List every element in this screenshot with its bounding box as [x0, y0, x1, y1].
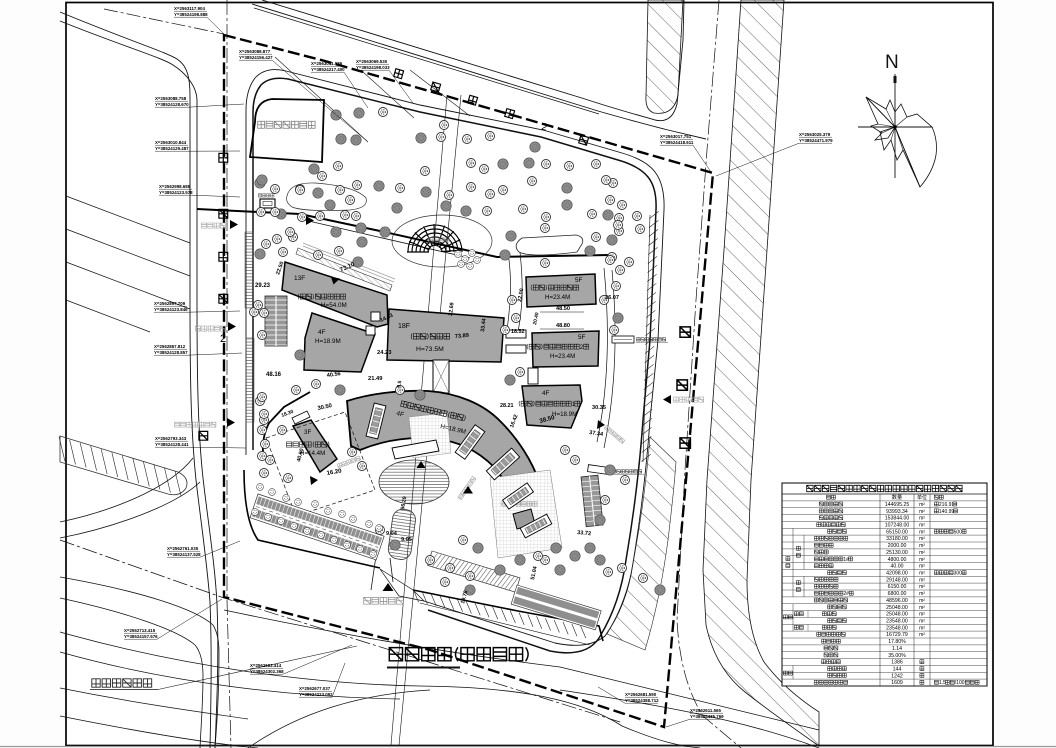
svg-text:13F: 13F	[294, 275, 305, 282]
svg-text:Y=38524302.368: Y=38524302.368	[250, 669, 284, 674]
svg-text:25048.00: 25048.00	[886, 605, 908, 611]
svg-text:m²: m²	[919, 598, 925, 604]
svg-text:Y=38524156.427: Y=38524156.427	[239, 55, 273, 60]
svg-text:1242: 1242	[891, 673, 903, 679]
svg-text:X=2563017.751: X=2563017.751	[660, 134, 692, 139]
svg-text:216.91: 216.91	[939, 502, 955, 508]
svg-text:H=23.4M: H=23.4M	[550, 353, 575, 360]
svg-text:/100: /100	[955, 680, 965, 686]
svg-text:m²: m²	[919, 522, 925, 528]
svg-text:500: 500	[954, 529, 963, 535]
svg-text:Y=38524217.400: Y=38524217.400	[311, 67, 345, 72]
svg-text:1609: 1609	[891, 680, 903, 686]
svg-text:48.50: 48.50	[556, 306, 570, 312]
svg-text:X=2562897.709: X=2562897.709	[154, 301, 186, 306]
svg-text:Y=38524198.888: Y=38524198.888	[174, 12, 208, 17]
svg-text:Y=38524128.670: Y=38524128.670	[155, 102, 189, 107]
svg-text:40.00: 40.00	[891, 564, 904, 570]
svg-text:48.16: 48.16	[266, 372, 282, 378]
svg-text:m²: m²	[919, 564, 925, 570]
svg-text:16729.79: 16729.79	[886, 632, 908, 638]
svg-text:23548.00: 23548.00	[886, 625, 908, 631]
svg-text:X=2563069.530: X=2563069.530	[356, 59, 388, 64]
svg-text:107248.00: 107248.00	[885, 522, 910, 528]
svg-text:2: 2	[580, 344, 584, 351]
svg-text:m²: m²	[919, 577, 925, 583]
svg-text:18F: 18F	[398, 323, 410, 330]
svg-text:m²: m²	[919, 543, 925, 549]
svg-text:Y=38524129.487: Y=38524129.487	[155, 146, 189, 151]
svg-text:H=54.0M: H=54.0M	[321, 302, 347, 309]
svg-text:X=2562677.037: X=2562677.037	[299, 686, 331, 691]
svg-text:Y=38524435.769: Y=38524435.769	[690, 714, 724, 719]
svg-text:m²: m²	[919, 612, 925, 618]
svg-text:6800.00: 6800.00	[888, 591, 907, 597]
svg-text:17.80%: 17.80%	[888, 639, 906, 645]
svg-text:X=2563088.877: X=2563088.877	[239, 49, 271, 54]
svg-text:18.52: 18.52	[511, 329, 525, 335]
svg-text:4800.00: 4800.00	[888, 557, 907, 563]
svg-text:48.80: 48.80	[556, 323, 570, 329]
svg-text:9.04: 9.04	[386, 531, 398, 537]
svg-text:数量: 数量	[892, 493, 902, 501]
svg-text:H=73.5M: H=73.5M	[416, 346, 444, 353]
svg-text:m²: m²	[919, 625, 925, 631]
svg-text:48596.00: 48596.00	[886, 598, 908, 604]
svg-text:m²: m²	[919, 502, 925, 508]
svg-text:m²: m²	[919, 632, 925, 638]
svg-text:H=23.4M: H=23.4M	[545, 294, 570, 301]
svg-text:6150.00: 6150.00	[888, 584, 907, 590]
svg-text:65150.00: 65150.00	[886, 529, 908, 535]
svg-text:Y=38524157.576: Y=38524157.576	[124, 634, 158, 639]
svg-text:Y=38524388.712: Y=38524388.712	[625, 698, 659, 703]
svg-text:单位: 单位	[917, 494, 927, 501]
svg-text:Y=38524128.857: Y=38524128.857	[154, 350, 188, 355]
svg-text:23548.00: 23548.00	[886, 618, 908, 624]
svg-text:Y=38524137.528: Y=38524137.528	[167, 552, 201, 557]
svg-text:X=2562761.035: X=2562761.035	[167, 546, 199, 551]
svg-text:m²: m²	[919, 516, 925, 522]
svg-text:X=2563041.986: X=2563041.986	[311, 61, 343, 66]
svg-text:m²: m²	[919, 557, 925, 563]
svg-text:X=2562683.414: X=2562683.414	[250, 663, 282, 668]
svg-text:X=2562793.343: X=2562793.343	[155, 436, 187, 441]
svg-text:73.89: 73.89	[455, 333, 469, 340]
svg-text:5F: 5F	[578, 334, 586, 341]
svg-text:144: 144	[893, 666, 902, 672]
svg-text:42098.00: 42098.00	[886, 570, 908, 576]
svg-text:m²: m²	[919, 570, 925, 576]
svg-text:24.23: 24.23	[377, 350, 392, 356]
svg-text:Y=38524223.092: Y=38524223.092	[299, 692, 333, 697]
svg-text:X=2562998.688: X=2562998.688	[159, 184, 191, 189]
svg-text:1#: 1#	[843, 557, 849, 563]
svg-text:300: 300	[954, 571, 963, 577]
svg-text:29148.00: 29148.00	[886, 577, 908, 583]
svg-text:N: N	[885, 52, 899, 73]
svg-text:140.99: 140.99	[939, 509, 955, 515]
svg-text:21.49: 21.49	[368, 376, 383, 382]
svg-text:29.23: 29.23	[255, 283, 271, 289]
svg-text:2000.00: 2000.00	[888, 543, 907, 549]
svg-text:X=2562611.565: X=2562611.565	[690, 708, 721, 713]
svg-text:4F: 4F	[318, 329, 326, 336]
svg-text:Y=38524418.611: Y=38524418.611	[660, 140, 694, 145]
svg-text:H=18.9M: H=18.9M	[315, 338, 341, 345]
svg-text:m²: m²	[919, 605, 925, 611]
svg-text:X=2563010.844: X=2563010.844	[155, 140, 187, 145]
svg-text:X=2562681.590: X=2562681.590	[625, 692, 657, 697]
svg-text:Y=38524123.846: Y=38524123.846	[154, 307, 188, 312]
svg-text:X=2562867.812: X=2562867.812	[154, 344, 186, 349]
svg-text:1: 1	[572, 401, 576, 408]
svg-text:28.21: 28.21	[500, 403, 514, 409]
svg-text:m²: m²	[919, 509, 925, 515]
svg-text:Y=38524123.578: Y=38524123.578	[159, 190, 193, 195]
svg-text:9.05: 9.05	[401, 537, 412, 543]
svg-text:Y=38524198.033: Y=38524198.033	[356, 65, 390, 70]
svg-text:3F: 3F	[304, 429, 311, 436]
svg-text:1.14: 1.14	[892, 646, 902, 652]
svg-text:33180.00: 33180.00	[886, 536, 908, 542]
svg-text:X=2563025.379: X=2563025.379	[799, 132, 831, 137]
svg-text:X=2563117.904: X=2563117.904	[174, 6, 205, 11]
svg-text:m²: m²	[919, 529, 925, 535]
svg-text:1.5: 1.5	[939, 680, 946, 686]
svg-text:X=2562713.415: X=2562713.415	[124, 628, 156, 633]
svg-text:26.07: 26.07	[605, 295, 619, 301]
svg-text:30.35: 30.35	[592, 405, 606, 411]
svg-text:153844.00: 153844.00	[885, 516, 910, 522]
svg-text:Y=38524128.441: Y=38524128.441	[155, 442, 189, 447]
svg-text:m²: m²	[919, 618, 925, 624]
svg-text:35.00%: 35.00%	[888, 653, 906, 659]
svg-text:93993.34: 93993.34	[886, 509, 908, 515]
svg-text:25048.00: 25048.00	[886, 612, 908, 618]
svg-text:m²: m²	[919, 591, 925, 597]
svg-text:Y=38524471.979: Y=38524471.979	[799, 138, 833, 143]
svg-text:144695.25: 144695.25	[885, 502, 910, 508]
svg-text:H=18.9M: H=18.9M	[552, 411, 577, 418]
svg-text:33.72: 33.72	[577, 530, 591, 537]
svg-text:25130.00: 25130.00	[886, 550, 908, 556]
svg-text:m²: m²	[919, 584, 925, 590]
svg-text:4F: 4F	[542, 390, 550, 397]
svg-text:X=2563088.758: X=2563088.758	[155, 96, 187, 101]
svg-text:m²: m²	[919, 536, 925, 542]
svg-text:2#: 2#	[843, 591, 849, 597]
svg-text:2: 2	[220, 333, 226, 345]
svg-text:1386: 1386	[891, 660, 903, 666]
svg-text:5F: 5F	[575, 277, 583, 284]
svg-text:m²: m²	[919, 550, 925, 556]
